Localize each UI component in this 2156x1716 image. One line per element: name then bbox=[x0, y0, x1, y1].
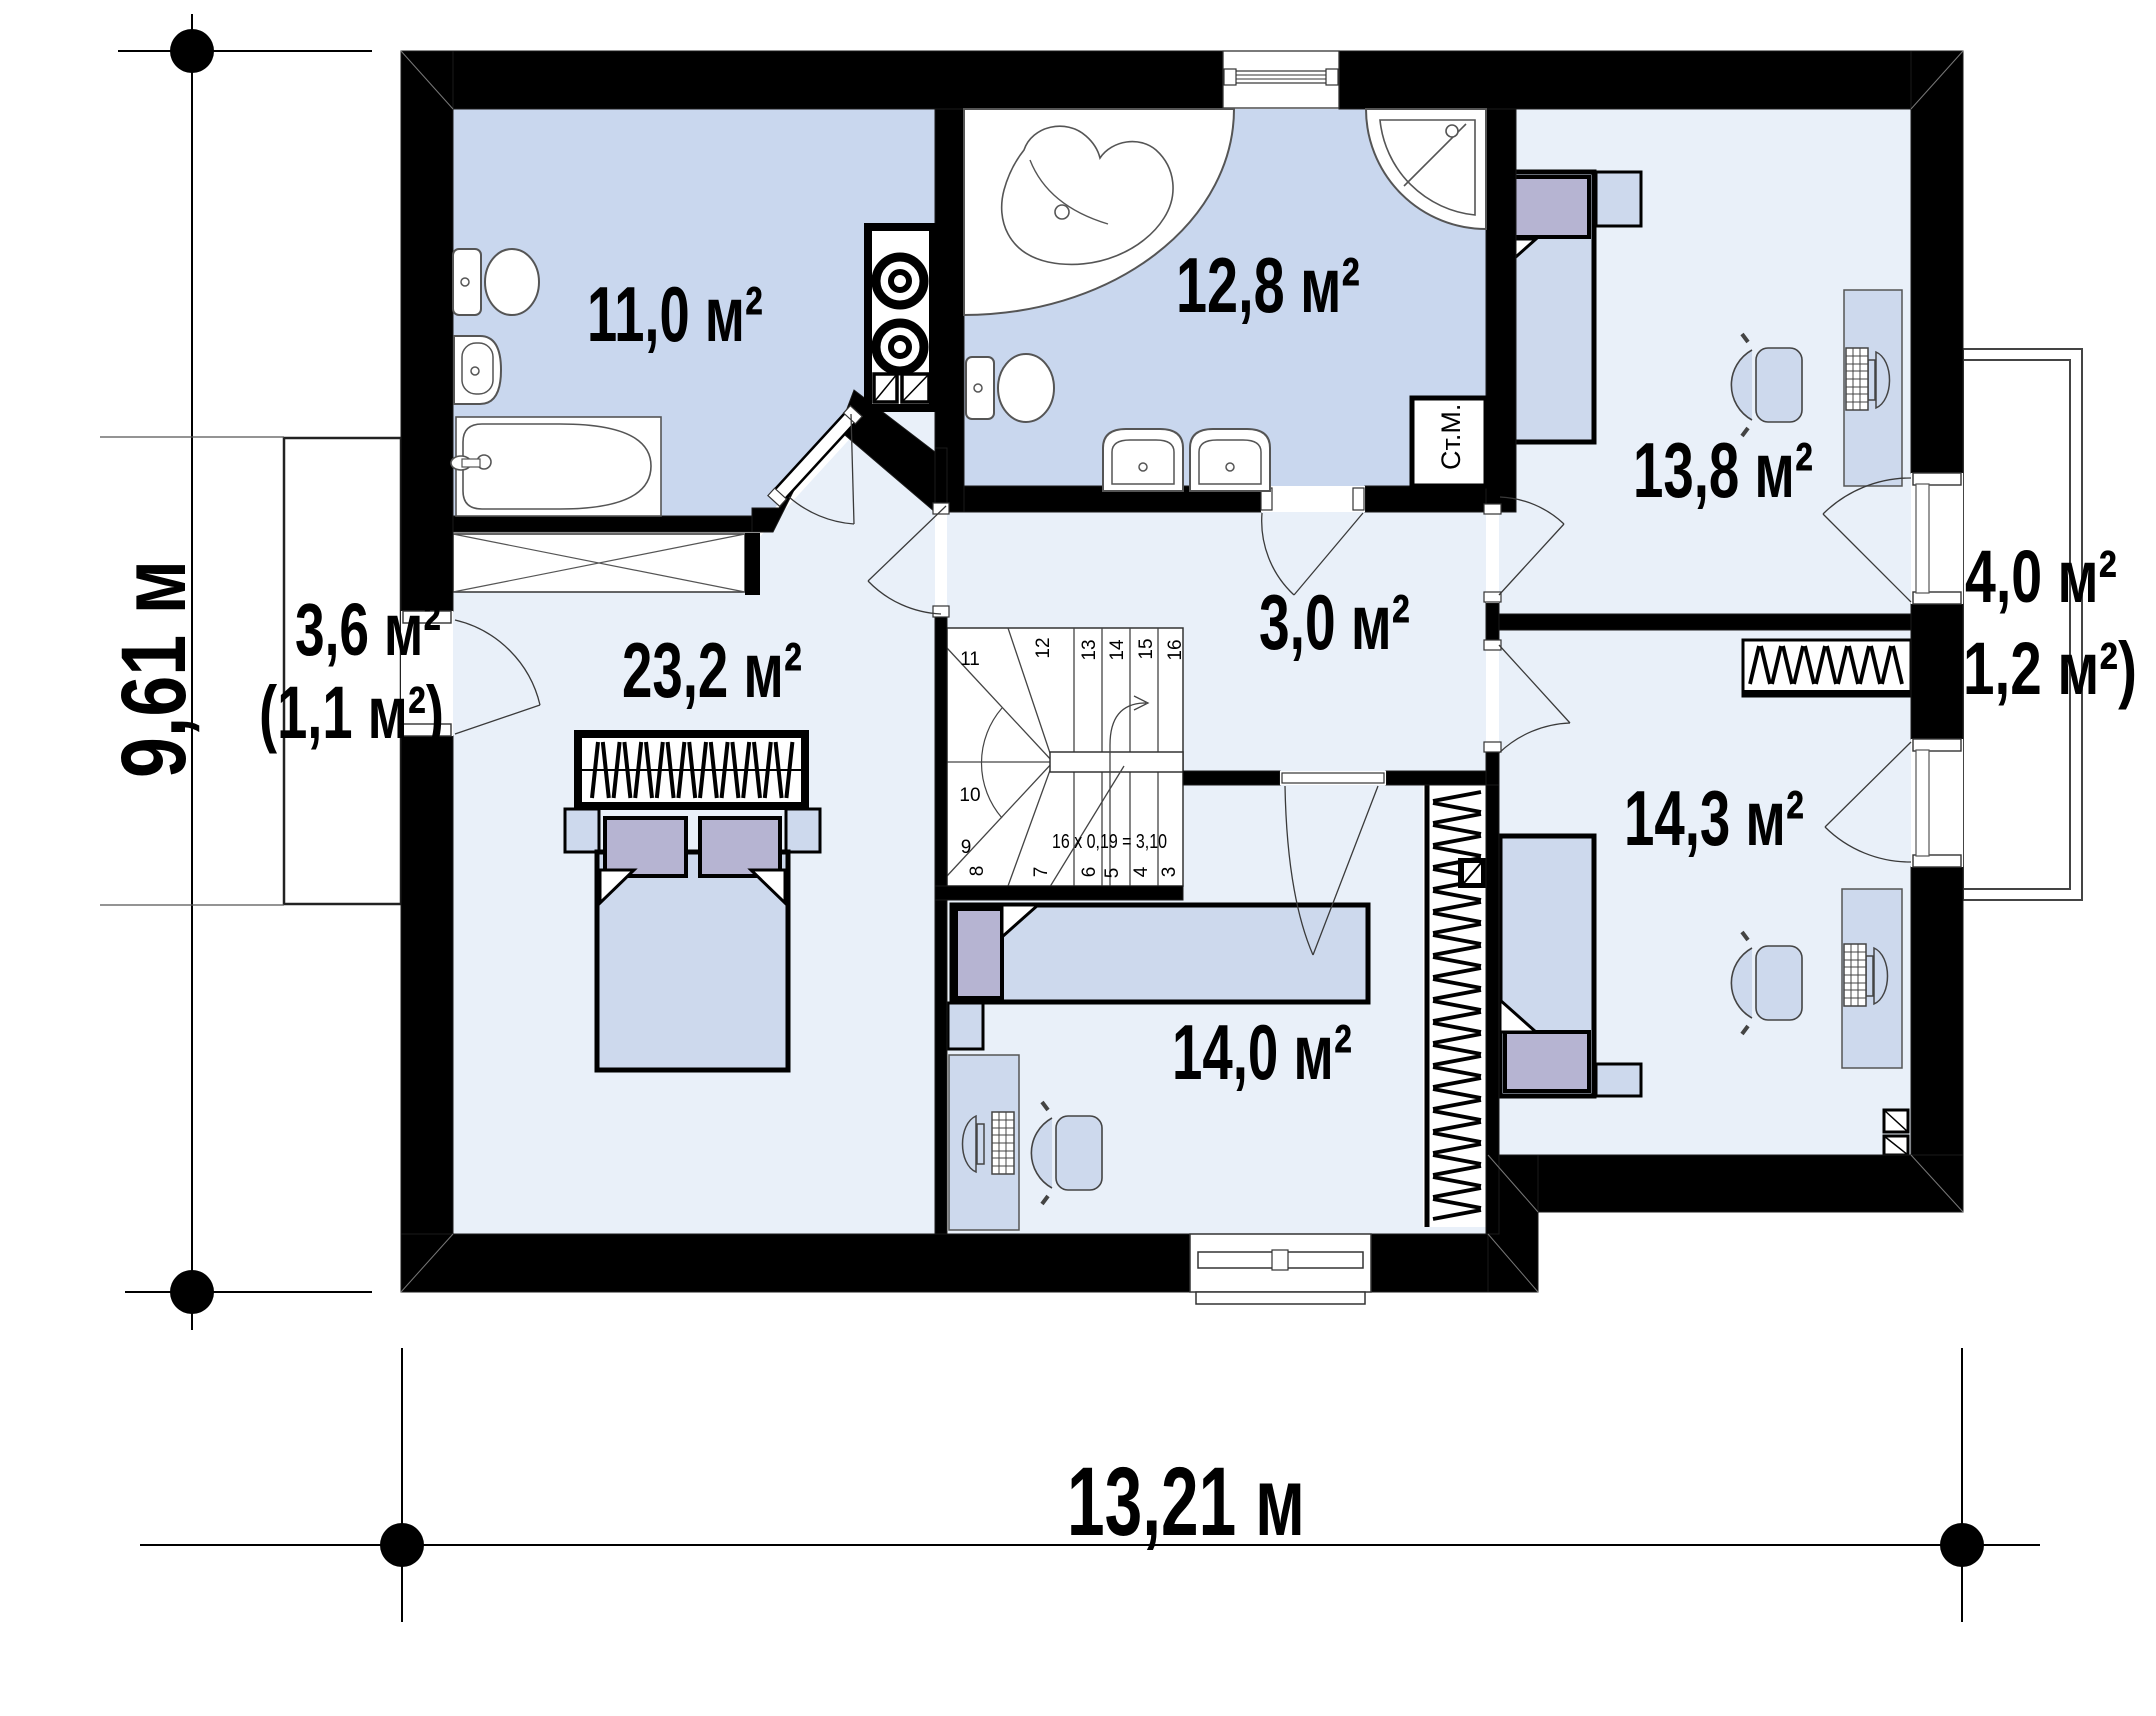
svg-text:10: 10 bbox=[959, 785, 980, 806]
svg-text:4: 4 bbox=[1131, 866, 1152, 877]
svg-text:13: 13 bbox=[1079, 639, 1100, 660]
svg-text:3,6 м²: 3,6 м² bbox=[295, 588, 441, 671]
svg-text:(1,1 м²): (1,1 м²) bbox=[259, 671, 444, 754]
svg-text:15: 15 bbox=[1136, 638, 1157, 659]
svg-text:9: 9 bbox=[961, 837, 972, 858]
svg-text:14,0 м²: 14,0 м² bbox=[1172, 1008, 1352, 1096]
svg-text:1,2 м²): 1,2 м²) bbox=[1963, 627, 2137, 710]
svg-text:13,8 м²: 13,8 м² bbox=[1633, 426, 1813, 514]
svg-text:3: 3 bbox=[1159, 867, 1180, 878]
svg-text:11: 11 bbox=[960, 649, 980, 670]
svg-text:9,61 м: 9,61 м bbox=[103, 560, 205, 778]
svg-text:14,3 м²: 14,3 м² bbox=[1624, 774, 1804, 862]
svg-text:12: 12 bbox=[1033, 637, 1054, 658]
svg-text:6: 6 bbox=[1079, 867, 1100, 878]
svg-text:13,21 м: 13,21 м bbox=[1067, 1447, 1305, 1556]
svg-text:8: 8 bbox=[967, 866, 988, 877]
svg-text:3,0 м²: 3,0 м² bbox=[1259, 578, 1410, 666]
svg-text:12,8 м²: 12,8 м² bbox=[1176, 241, 1360, 329]
svg-text:7: 7 bbox=[1031, 867, 1052, 878]
svg-text:16 x 0,19 = 3,10: 16 x 0,19 = 3,10 bbox=[1052, 831, 1167, 853]
svg-text:16: 16 bbox=[1165, 639, 1186, 660]
svg-text:Ст.М.: Ст.М. bbox=[1436, 404, 1466, 470]
svg-text:14: 14 bbox=[1107, 639, 1128, 661]
svg-text:11,0 м²: 11,0 м² bbox=[587, 270, 763, 358]
svg-text:4,0 м²: 4,0 м² bbox=[1965, 535, 2117, 618]
svg-text:5: 5 bbox=[1102, 868, 1123, 879]
svg-text:23,2 м²: 23,2 м² bbox=[622, 626, 802, 714]
